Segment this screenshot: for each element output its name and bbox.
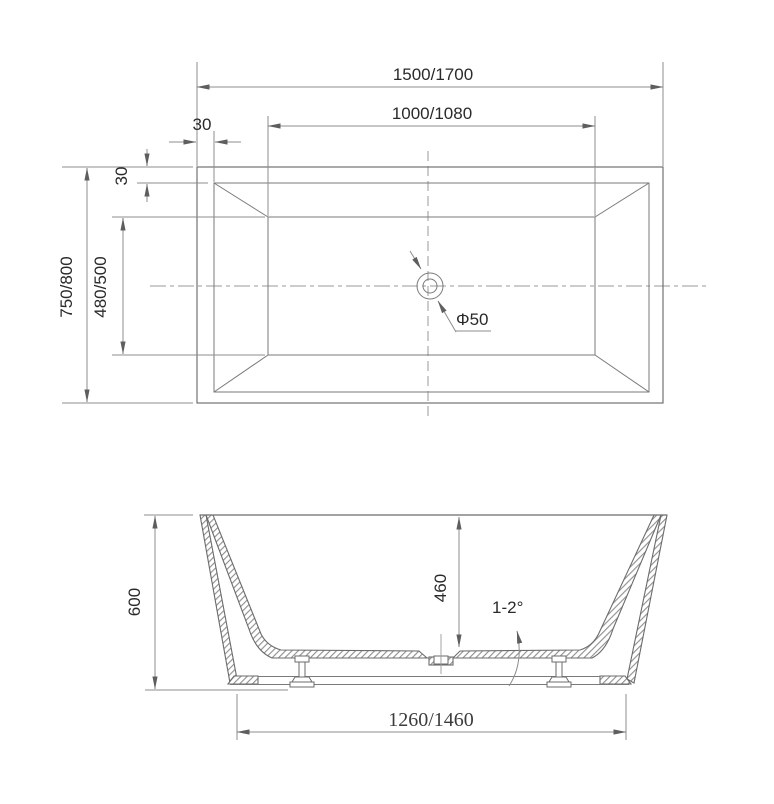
base-length-label: 1260/1460 bbox=[388, 709, 474, 731]
rim-width-side-label: 30 bbox=[112, 167, 131, 186]
bathtub-technical-drawing: Φ50 1500/1700 1000/1080 30 30 bbox=[0, 0, 774, 804]
plan-inner-rim bbox=[214, 183, 649, 392]
left-foot bbox=[290, 656, 314, 687]
overall-width-label: 750/800 bbox=[57, 256, 76, 317]
rim-width-top-label: 30 bbox=[193, 115, 212, 134]
basin-length-label: 1000/1080 bbox=[392, 104, 472, 123]
overall-height-label: 600 bbox=[125, 588, 144, 616]
section-drain bbox=[429, 634, 453, 674]
drawing-canvas: Φ50 1500/1700 1000/1080 30 30 bbox=[0, 0, 774, 804]
right-foot bbox=[547, 656, 571, 687]
dim-rim-width-side bbox=[62, 149, 208, 202]
dim-basin-length bbox=[268, 116, 595, 216]
plan-view: Φ50 1500/1700 1000/1080 30 30 bbox=[57, 62, 707, 419]
plan-outer-rim bbox=[197, 167, 663, 403]
basin-depth-label: 460 bbox=[431, 574, 450, 602]
section-view: 600 460 1-2° 1260/1460 bbox=[125, 515, 667, 740]
plan-corner-slopes bbox=[214, 183, 649, 392]
drain-diameter-label: Φ50 bbox=[456, 310, 488, 329]
basin-width-label: 480/500 bbox=[91, 256, 110, 317]
dim-rim-width-top bbox=[169, 131, 241, 182]
dim-overall-height bbox=[144, 515, 193, 689]
overall-length-label: 1500/1700 bbox=[393, 65, 473, 84]
floor-slope-label: 1-2° bbox=[492, 598, 523, 617]
